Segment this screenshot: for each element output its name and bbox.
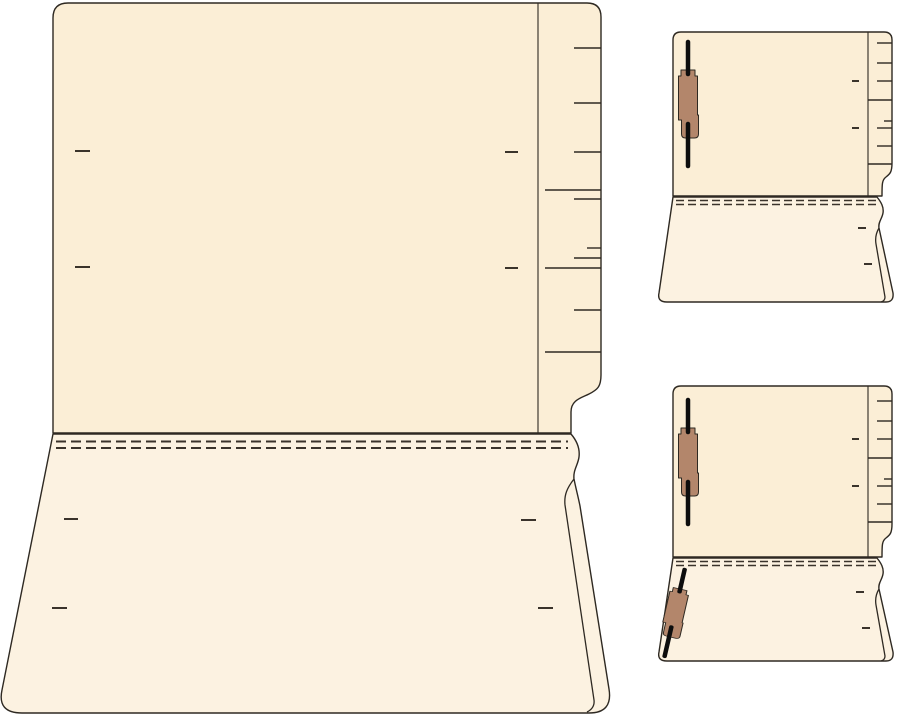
top-flap — [673, 386, 892, 557]
top-flap — [53, 3, 601, 433]
bottom-panel — [659, 558, 893, 661]
bottom-panel — [1, 434, 609, 713]
bottom-panel — [659, 197, 893, 302]
top-flap — [673, 32, 892, 196]
illustration-canvas — [0, 0, 897, 718]
folder-small-two-fasteners — [655, 386, 893, 661]
folder-small-one-fastener — [659, 32, 893, 302]
folder-large — [1, 3, 609, 713]
